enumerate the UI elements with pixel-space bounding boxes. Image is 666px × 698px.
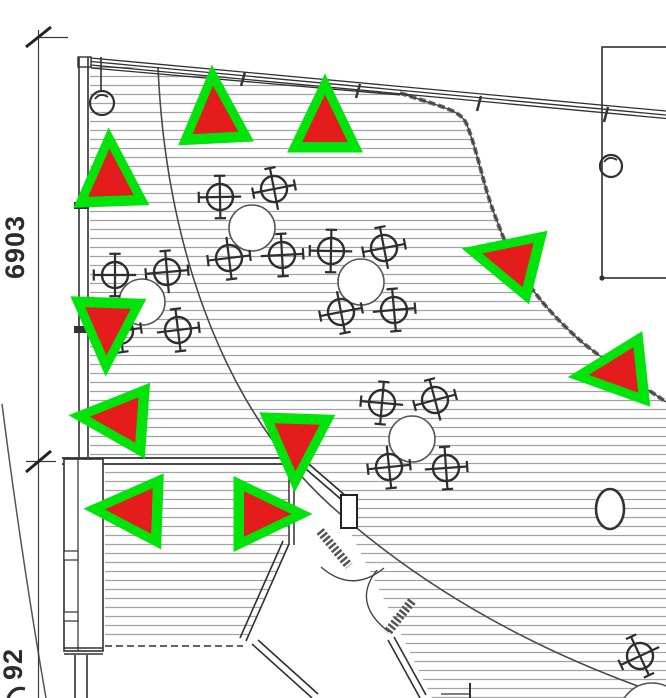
- dimension-label-bottom: 92: [0, 648, 28, 680]
- floor-plan-screenshot: 6903 92: [0, 0, 666, 698]
- table-symbol: [338, 259, 384, 305]
- door-post: [341, 495, 357, 528]
- dimension-label-vertical: 6903: [0, 215, 30, 279]
- table-symbol: [229, 205, 275, 251]
- top-right-room: [602, 47, 666, 278]
- column-symbol: [596, 489, 624, 529]
- floor-plan-svg: 6903 92: [0, 0, 666, 698]
- dimension-label-cut-fragment: [8, 688, 25, 698]
- room-corner-dot: [599, 275, 604, 280]
- door-leaf: [320, 531, 349, 566]
- room-fixture-hook: [604, 158, 617, 162]
- dimension-annotations: 6903 92: [0, 27, 68, 698]
